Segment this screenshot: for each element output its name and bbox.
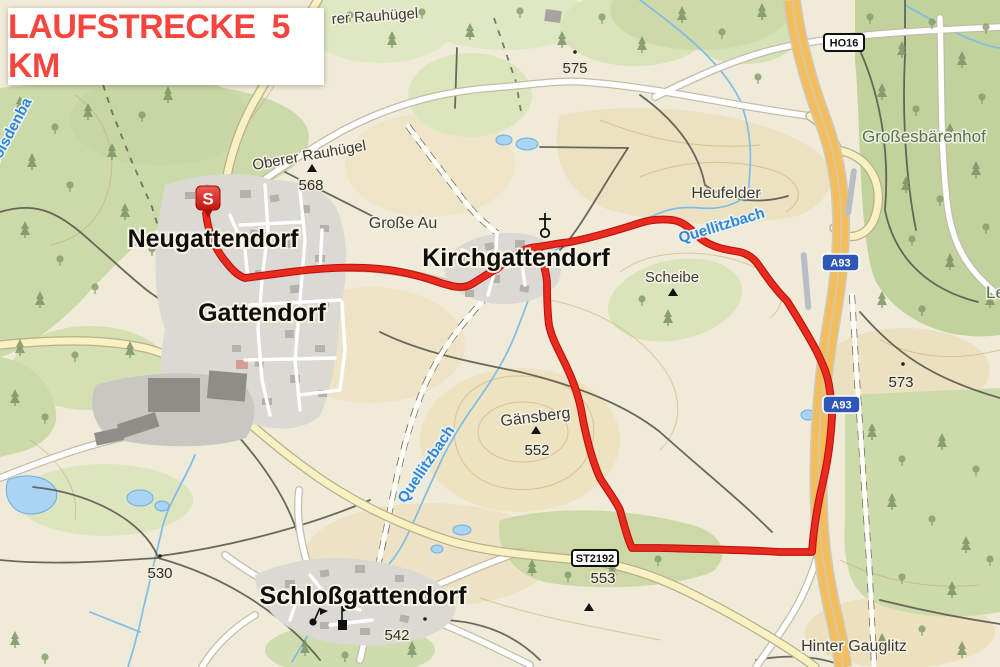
start-marker-label: S: [202, 190, 213, 209]
place-label-grossesbaerenhof: Großesbärenhof: [862, 127, 986, 146]
spot-height-dot: [423, 617, 427, 621]
place-label-grosse-au: Große Au: [369, 215, 437, 232]
place-label-le-fragment: Le: [986, 283, 1000, 302]
spot-height-dot: [573, 50, 577, 54]
place-label-scheibe: Scheibe: [645, 269, 699, 286]
spot-height-dot: [901, 362, 905, 366]
elevation-552: 552: [524, 442, 549, 459]
elevation-568: 568: [298, 177, 323, 194]
map-screenshot: Neugattendorf Gattendorf Kirchgattendorf…: [0, 0, 1000, 667]
elevation-530: 530: [147, 565, 172, 582]
motorway-badge-a93: A93: [822, 254, 859, 271]
svg-text:A93: A93: [830, 258, 850, 270]
motorway-badge-a93: A93: [823, 396, 860, 413]
spot-height-dot: [158, 554, 162, 558]
town-label-neugattendorf: Neugattendorf: [128, 225, 300, 253]
town-label-schlossgattendorf: Schloßgattendorf: [260, 582, 468, 610]
elevation-575: 575: [562, 60, 587, 77]
elevation-553: 553: [590, 570, 615, 587]
elevation-542: 542: [384, 627, 409, 644]
town-label-gattendorf: Gattendorf: [198, 299, 326, 327]
place-label-heufelder: Heufelder: [691, 185, 761, 202]
town-label-kirchgattendorf: Kirchgattendorf: [422, 244, 610, 272]
road-badge-st2192: ST2192: [572, 550, 618, 566]
place-label-hinter-gauglitz: Hinter Gauglitz: [801, 638, 907, 655]
elevation-573: 573: [888, 374, 913, 391]
svg-text:ST2192: ST2192: [576, 553, 615, 565]
route-title-text: LAUFSTRECKE 5 KM: [8, 8, 324, 86]
svg-text:HO16: HO16: [830, 38, 859, 50]
road-badge-ho16: HO16: [824, 34, 864, 51]
svg-text:A93: A93: [831, 400, 851, 412]
map-canvas[interactable]: Neugattendorf Gattendorf Kirchgattendorf…: [0, 0, 1000, 667]
route-title-box: LAUFSTRECKE 5 KM: [8, 8, 324, 85]
